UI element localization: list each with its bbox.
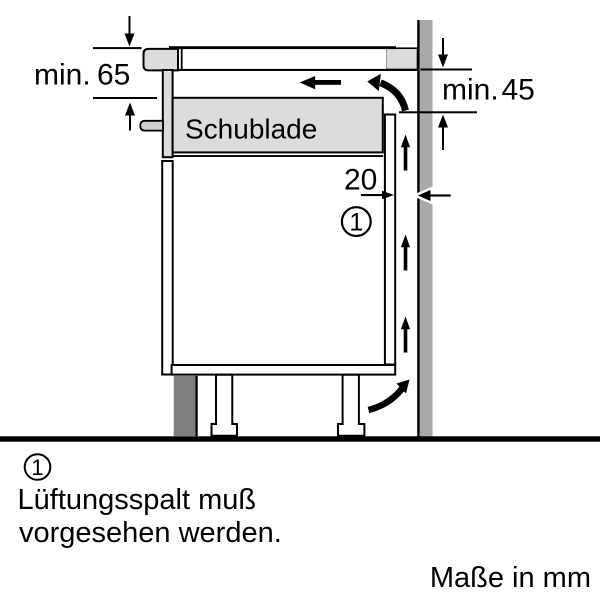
svg-text:min.: min.	[442, 74, 499, 107]
svg-text:vorgesehen werden.: vorgesehen werden.	[19, 517, 282, 549]
svg-text:Lüftungsspalt muß: Lüftungsspalt muß	[18, 484, 257, 516]
svg-text:1: 1	[31, 455, 43, 480]
svg-text:Maße in mm: Maße in mm	[430, 562, 591, 594]
svg-text:45: 45	[502, 74, 535, 107]
svg-text:20: 20	[344, 164, 377, 197]
svg-text:Schublade: Schublade	[185, 114, 317, 145]
svg-text:1: 1	[349, 209, 363, 237]
svg-text:65: 65	[97, 59, 130, 92]
svg-text:min.: min.	[34, 59, 91, 92]
